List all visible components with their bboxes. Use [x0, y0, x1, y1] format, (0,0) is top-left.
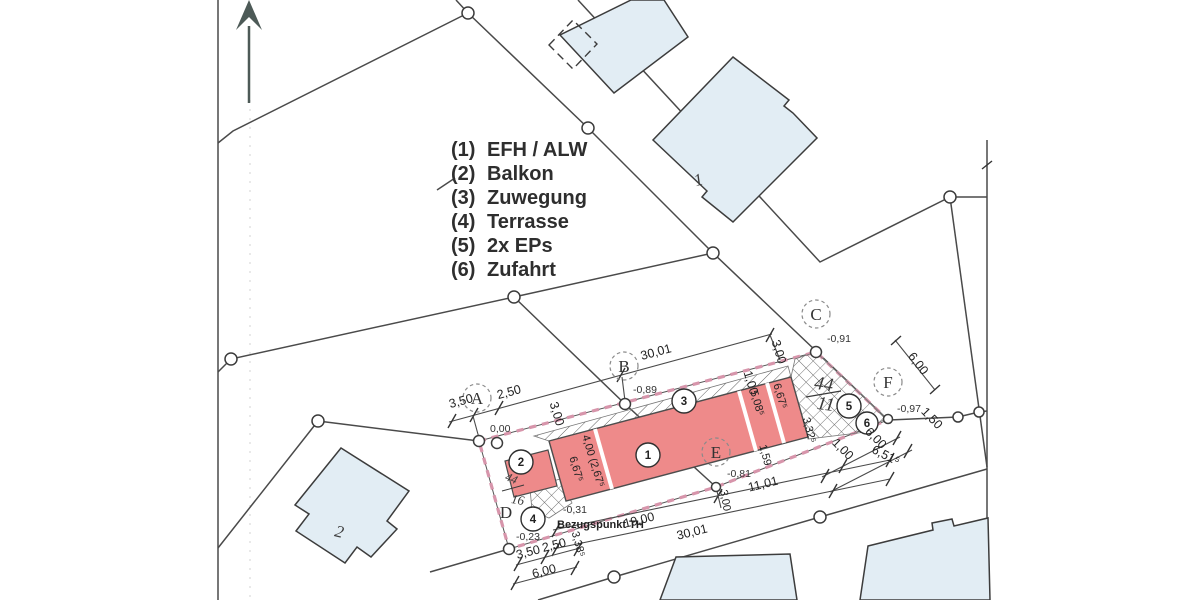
legend-label-6: Zufahrt — [487, 259, 556, 281]
legend-num-3: (3) — [451, 187, 475, 209]
elev-f: -0,97 — [897, 403, 921, 415]
badge-4: 4 — [530, 514, 537, 526]
parcel-44-11-den: 11 — [816, 393, 836, 416]
elev-c: -0,91 — [827, 333, 851, 345]
site-plan-drawing: A B C D E F 1 2 3 4 5 6 1 2 44 16 44 11 … — [0, 0, 1200, 600]
point-c-letter: C — [810, 305, 821, 324]
point-e-letter: E — [711, 443, 721, 462]
legend-num-1: (1) — [451, 139, 475, 161]
badge-5: 5 — [846, 401, 853, 413]
legend-label-3: Zuwegung — [487, 187, 587, 209]
background — [0, 0, 1200, 600]
legend-num-5: (5) — [451, 235, 475, 257]
elev-a: 0,00 — [490, 423, 511, 435]
legend-label-4: Terrasse — [487, 211, 569, 233]
legend-num-4: (4) — [451, 211, 475, 233]
point-f-letter: F — [883, 373, 892, 392]
badge-3: 3 — [681, 396, 687, 408]
site-plan-page: A B C D E F 1 2 3 4 5 6 1 2 44 16 44 11 … — [0, 0, 1200, 600]
elev-e: -0,81 — [727, 468, 751, 480]
building-south-center — [660, 554, 797, 600]
legend-label-5: 2x EPs — [487, 235, 553, 257]
point-b-letter: B — [618, 357, 629, 376]
legend-num-6: (6) — [451, 259, 475, 281]
elev-b: -0,89 — [633, 384, 657, 396]
badge-2: 2 — [518, 457, 524, 469]
badge-1: 1 — [645, 450, 652, 462]
reference-point-label: Bezugspunkt TH — [557, 519, 644, 531]
legend-label-1: EFH / ALW — [487, 139, 587, 161]
legend-label-2: Balkon — [487, 163, 554, 185]
legend-num-2: (2) — [451, 163, 475, 185]
elev-d: -0,23 — [516, 531, 540, 543]
elev-reference: -0,31 — [563, 504, 587, 516]
